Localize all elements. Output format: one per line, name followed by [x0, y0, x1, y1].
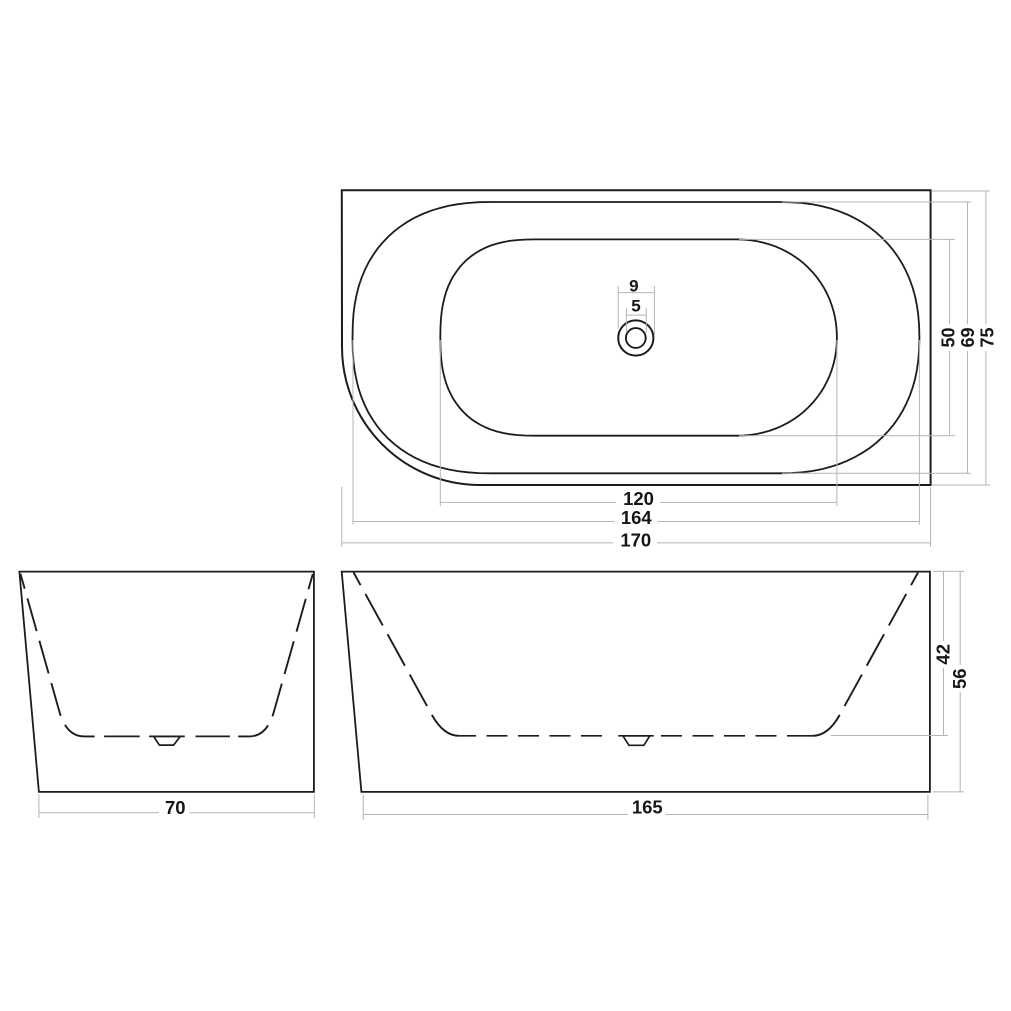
svg-text:170: 170	[620, 530, 651, 551]
svg-text:70: 70	[165, 797, 186, 818]
svg-text:5: 5	[631, 297, 640, 316]
svg-text:42: 42	[933, 644, 954, 665]
svg-text:75: 75	[977, 327, 997, 347]
svg-text:50: 50	[939, 327, 959, 347]
svg-text:56: 56	[949, 668, 970, 689]
svg-text:69: 69	[958, 327, 978, 347]
svg-text:9: 9	[629, 277, 638, 296]
svg-text:120: 120	[623, 488, 654, 509]
svg-text:164: 164	[621, 507, 653, 528]
svg-text:165: 165	[632, 797, 663, 818]
